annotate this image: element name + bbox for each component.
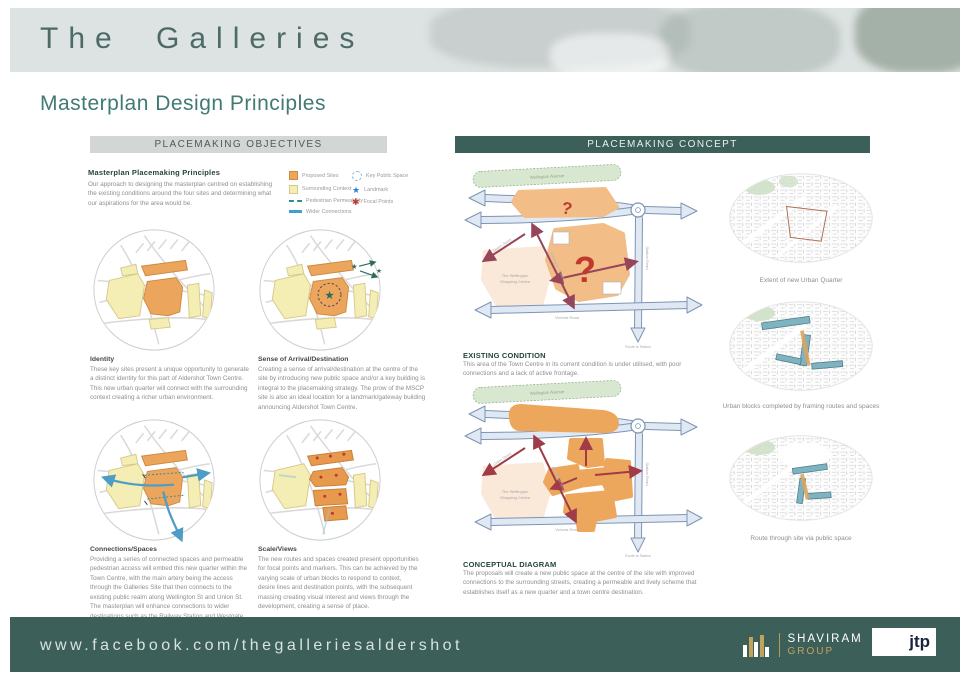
shaviram-logo-icon (743, 633, 771, 657)
legend-label: Proposed Sites (302, 173, 339, 179)
legend-item: ✱Focal Points (352, 198, 402, 206)
road-label: Victoria Road (555, 527, 579, 532)
legend-item: Key Public Space (352, 171, 402, 181)
jtp-logo: jtp (872, 628, 936, 656)
study-caption: Extent of new Urban Quarter (716, 276, 886, 285)
principle-heading: Identity (90, 356, 114, 363)
principle-heading: Sense of Arrival/Destination (258, 356, 348, 363)
identity-map (92, 228, 216, 352)
key-public-space-icon (352, 171, 362, 181)
shopping-centre-label: Shopping Centre (500, 279, 531, 284)
principle-heading: Scale/Views (258, 546, 297, 553)
principle-body: Creating a sense of arrival/destination … (258, 365, 426, 412)
surrounding-context-swatch-icon (289, 185, 298, 194)
legend-label: Surrounding Context (302, 186, 351, 192)
urban-quarter-extent-sketch (718, 168, 884, 272)
board-title: The Galleries (40, 22, 364, 56)
block-blob (511, 406, 617, 431)
logo-divider (779, 633, 780, 657)
landmark-star-icon: ★ (376, 267, 382, 275)
legend-label: Focal Points (364, 199, 394, 205)
intro-body: Our approach to designing the masterplan… (88, 180, 278, 208)
study-caption: Urban blocks completed by framing routes… (716, 402, 886, 411)
sense-of-arrival-map: ★ ★ ★ (258, 228, 382, 352)
shopping-centre-label: Shopping Centre (500, 495, 531, 500)
aerial-photo-trees (855, 8, 960, 72)
connections-map (92, 418, 216, 542)
aerial-photo-faded (660, 8, 840, 72)
route-to-station-label: Route to Station (625, 554, 651, 558)
aerial-photo-faded (550, 33, 670, 72)
route-to-station-label: Route to Station (625, 345, 651, 349)
legend-item: Wider Connections (289, 209, 353, 215)
shaviram-group-logo: SHAVIRAM GROUP (743, 630, 863, 660)
route-public-space-sketch (718, 430, 884, 530)
existing-condition-diagram: Wellington Avenue ? ? The Wellin (455, 158, 705, 350)
conceptual-diagram-heading: CONCEPTUAL DIAGRAM (463, 560, 556, 569)
road-label: Station Road (645, 246, 650, 269)
legend-item: Pedestrian Permeability (289, 198, 353, 204)
road-label: Station Road (645, 462, 650, 485)
section-bar-placemaking-objectives: PLACEMAKING OBJECTIVES (90, 136, 387, 153)
legend-item: ★Landmark (352, 186, 402, 194)
map-legend-col2: Key Public Space ★Landmark ✱Focal Points (352, 171, 402, 211)
proposed-sites-swatch-icon (289, 171, 298, 180)
legend-label: Key Public Space (366, 173, 408, 179)
landmark-star-icon: ★ (352, 186, 360, 194)
legend-item: Proposed Sites (289, 171, 353, 180)
map-legend-col1: Proposed Sites Surrounding Context Pedes… (289, 171, 353, 219)
existing-condition-heading: EXISTING CONDITION (463, 351, 546, 360)
focal-points-star-icon: ✱ (352, 198, 360, 206)
shopping-centre-label: The Wellington (502, 489, 529, 494)
principle-body: The new routes and spaces created presen… (258, 555, 420, 612)
landmark-star-icon: ★ (351, 262, 358, 271)
shopping-centre-label: The Wellington (502, 273, 529, 278)
urban-blocks-sketch (718, 296, 884, 400)
conceptual-diagram: Wellington Avenue (455, 376, 705, 558)
section-bar-placemaking-concept: PLACEMAKING CONCEPT (455, 136, 870, 153)
pedestrian-permeability-line-icon (289, 200, 302, 202)
scale-views-map (258, 418, 382, 542)
page-title: Masterplan Design Principles (40, 92, 326, 116)
principle-heading: Connections/Spaces (90, 546, 157, 553)
legend-label: Wider Connections (306, 209, 352, 215)
road-label: Victoria Road (555, 315, 579, 320)
question-mark: ? (574, 249, 596, 290)
facebook-url-link[interactable]: www.facebook.com/thegalleriesaldershot (40, 637, 463, 655)
principle-body: These key sites present a unique opportu… (90, 365, 252, 403)
legend-item: Surrounding Context (289, 185, 353, 194)
wider-connections-line-icon (289, 210, 302, 213)
footer-band: www.facebook.com/thegalleriesaldershot S… (10, 617, 960, 672)
conceptual-diagram-body: The proposals will create a new public s… (463, 569, 701, 597)
landmark-star-icon: ★ (324, 290, 334, 302)
legend-label: Landmark (364, 187, 388, 193)
shaviram-name: SHAVIRAM (788, 633, 863, 646)
study-caption: Route through site via public space (716, 534, 886, 543)
masterplan-board: The Galleries Masterplan Design Principl… (0, 0, 960, 683)
intro-heading: Masterplan Placemaking Principles (88, 168, 288, 177)
shaviram-sub: GROUP (788, 646, 863, 657)
